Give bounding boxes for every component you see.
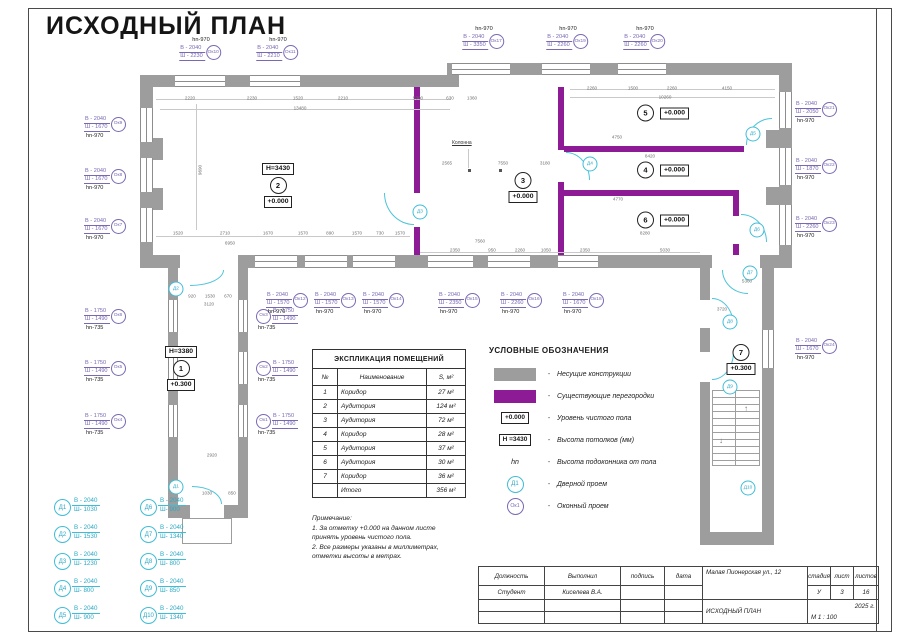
window-annotation: В - 2040Ш - 1870Ок22hn-970 xyxy=(795,158,837,182)
window-annotation: Ок2В - 1750Ш - 1490hn-735 xyxy=(256,360,298,384)
legend-title: УСЛОВНЫЕ ОБОЗНАЧЕНИЯ xyxy=(489,346,699,355)
window-dim-line: В - 2040 xyxy=(795,338,821,346)
window-dim-line: В - 2040 xyxy=(84,218,110,226)
sill-height-label: hn-735 xyxy=(84,430,126,437)
tb-empty xyxy=(665,612,703,623)
dim-label: 1570 xyxy=(298,231,308,236)
window-annotation: В - 2040Ш - 1670Ок24hn-970 xyxy=(795,338,837,362)
door-circle-symbol: Д1 xyxy=(507,476,524,493)
window-dims: В - 1750Ш - 1490 xyxy=(84,413,110,429)
window-opening xyxy=(238,405,248,437)
window-annotation: В - 2040Ш - 2350Ок15hn-970 xyxy=(438,292,480,316)
window-dim-line: В - 1750 xyxy=(84,308,110,316)
dim-label: 730 xyxy=(376,231,384,236)
sill-height-label: hn-735 xyxy=(256,377,298,384)
window-annotation-row: В - 1750Ш - 1490Ок6 xyxy=(84,308,126,324)
window-dim-line: Ш - 2260 xyxy=(500,300,526,308)
partition-segment xyxy=(733,196,739,216)
wall-segment xyxy=(666,63,792,75)
wall-segment xyxy=(238,255,255,268)
dim-label: 850 xyxy=(228,491,236,496)
door-id-badge: Д6 xyxy=(140,499,157,516)
window-dim-line: В - 2040 xyxy=(795,101,821,109)
window-annotation-row: В - 2040Ш - 3350Ок17 xyxy=(462,34,504,50)
dim-label: 670 xyxy=(224,294,232,299)
tb-empty xyxy=(545,600,621,612)
window-opening xyxy=(618,63,666,75)
schedule-cell: Итого xyxy=(338,484,427,498)
door-marker: Д9 xyxy=(723,380,738,395)
dim-label: 890 xyxy=(326,231,334,236)
schedule-table: ЭКСПЛИКАЦИЯ ПОМЕЩЕНИЙ№НаименованиеS, м²1… xyxy=(312,349,466,498)
window-annotation-row: В - 2040Ш - 2260Ок20 xyxy=(623,34,665,50)
window-dims: В - 2040Ш - 1670 xyxy=(84,218,110,234)
door-height: В - 2040 xyxy=(72,578,100,587)
dim-label: 1360 xyxy=(467,96,477,101)
partition-segment xyxy=(733,244,739,255)
room-elevation: +0.300 xyxy=(727,363,756,375)
legend-symbol xyxy=(489,368,541,381)
tb-date-value xyxy=(665,586,703,600)
sill-height-label: hn-735 xyxy=(84,325,126,332)
wall-opening xyxy=(190,505,224,518)
wall-segment xyxy=(760,255,792,268)
sill-height-label: hn-970 xyxy=(562,309,604,316)
dim-label: 2920 xyxy=(207,453,217,458)
schedule-cell: Аудитория xyxy=(338,414,427,428)
wall-segment xyxy=(510,63,542,75)
door-spec: Д7В - 2040Ш- 1340 xyxy=(140,524,186,551)
room-elevation: +0.000 xyxy=(509,191,538,203)
window-dims: В - 1750Ш - 1490 xyxy=(84,360,110,376)
dim-label: 8420 xyxy=(645,154,655,159)
legend-dash: - xyxy=(541,371,557,378)
dim-label: 2260 xyxy=(587,86,597,91)
schedule-cell: Коридор xyxy=(338,428,427,442)
door-spec: Д6В - 2040Ш- 900 xyxy=(140,497,186,524)
legend-item: Н =3430-Высота потолков (мм) xyxy=(489,429,699,451)
sill-height-label: hn-970 xyxy=(438,309,480,316)
wall-opening xyxy=(180,255,238,268)
door-height: В - 2040 xyxy=(72,524,100,533)
dim-label: 5300 xyxy=(413,96,423,101)
stairs-down-arrow: ↓ xyxy=(719,436,723,445)
door-spec-dims: В - 2040Ш- 1530 xyxy=(72,524,100,541)
dim-label: 630 xyxy=(446,96,454,101)
window-dim-line: Ш - 1490 xyxy=(272,316,298,324)
door-height: В - 2040 xyxy=(158,497,186,506)
legend-item: Ок1-Оконный проем xyxy=(489,495,699,517)
window-opening xyxy=(558,255,598,268)
column-label: Колонна xyxy=(452,140,472,146)
window-opening xyxy=(452,63,510,75)
wall-segment xyxy=(300,75,447,87)
notes: Примечание: 1. За отметку +0.000 на данн… xyxy=(312,514,487,562)
sill-height-label: hn-970 xyxy=(179,37,221,44)
window-id-badge: Ок24 xyxy=(822,339,837,354)
door-width: Ш- 900 xyxy=(72,614,100,622)
window-opening xyxy=(238,300,248,332)
door-spec: Д10В - 2040Ш- 1340 xyxy=(140,605,186,632)
window-dim-line: Ш - 1490 xyxy=(84,316,110,324)
dim-label: 2220 xyxy=(185,96,195,101)
wall-swatch xyxy=(494,368,536,381)
window-annotation: hn-970В - 2040Ш - 2260Ок19 xyxy=(546,26,588,50)
wall-segment xyxy=(766,187,779,205)
door-height: В - 2040 xyxy=(72,605,100,614)
window-dim-line: Ш - 1490 xyxy=(84,421,110,429)
tb-stage-value: У xyxy=(808,586,831,600)
window-id-badge: Ок16 xyxy=(527,293,542,308)
room-elevation: +0.000 xyxy=(660,214,689,226)
window-id-badge: Ок4 xyxy=(111,414,126,429)
window-dim-line: Ш - 1490 xyxy=(272,421,298,429)
sill-height-label: hn-970 xyxy=(795,118,837,125)
window-annotation-row: В - 2040Ш - 2260Ок16 xyxy=(500,292,542,308)
window-annotation: hn-970В - 2040Ш - 2230Ок10 xyxy=(179,37,221,61)
schedule-cell: 6 xyxy=(313,456,338,470)
wall-segment xyxy=(238,332,248,352)
wall-segment xyxy=(238,268,248,300)
schedule-cell: 2 xyxy=(313,400,338,414)
door-specs-column: Д1В - 2040Ш- 1030Д2В - 2040Ш- 1530Д3В - … xyxy=(54,497,100,632)
sill-height-label: hn-970 xyxy=(623,26,665,33)
door-marker: Д1 xyxy=(169,480,184,495)
window-dim-line: В - 2040 xyxy=(795,216,821,224)
door-spec-dims: В - 2040Ш- 1230 xyxy=(72,551,100,568)
dimension-line xyxy=(156,99,451,100)
window-dim-line: В - 1750 xyxy=(84,360,110,368)
tb-sign-value xyxy=(621,586,665,600)
room-label: 7+0.300 xyxy=(727,344,756,375)
window-id-badge: Ок12 xyxy=(293,293,308,308)
door-width: Ш- 800 xyxy=(72,587,100,595)
room-number: 1 xyxy=(173,360,190,377)
window-opening xyxy=(175,75,225,87)
dim-label: 1520 xyxy=(173,231,183,236)
legend-item: +0.000-Уровень чистого пола xyxy=(489,407,699,429)
window-dim-line: В - 2040 xyxy=(314,292,340,300)
window-opening xyxy=(250,75,300,87)
window-id-badge: Ок15 xyxy=(465,293,480,308)
window-opening xyxy=(779,148,792,185)
door-spec: Д5В - 2040Ш- 900 xyxy=(54,605,100,632)
tb-sheets-value: 16 xyxy=(854,586,878,600)
window-dims: В - 2040Ш - 2260 xyxy=(546,34,572,50)
schedule-cell: 36 м² xyxy=(427,470,466,484)
dim-label: 2260 xyxy=(515,248,525,253)
door-height: В - 2040 xyxy=(158,605,186,614)
wall-segment xyxy=(140,142,153,158)
partition-segment xyxy=(564,190,739,196)
dim-label: 2210 xyxy=(338,96,348,101)
door-marker: Д5 xyxy=(746,127,761,142)
schedule-header: Наименование xyxy=(338,369,427,386)
sill-height-label: hn-970 xyxy=(362,309,404,316)
window-id-badge: Ок18 xyxy=(589,293,604,308)
dim-label: 7560 xyxy=(475,239,485,244)
dim-label: 1030 xyxy=(202,491,212,496)
door-width: Ш- 900 xyxy=(158,506,186,514)
wall-segment xyxy=(590,63,618,75)
window-opening xyxy=(168,405,178,437)
elevation-box-symbol: Н =3430 xyxy=(499,434,532,446)
sill-height-symbol: hn xyxy=(511,459,519,466)
window-id-badge: Ок17 xyxy=(489,34,504,49)
window-opening xyxy=(779,205,792,245)
window-annotation: В - 2040Ш - 1570Ок13hn-970 xyxy=(314,292,356,316)
tb-sheet-value: 3 xyxy=(831,586,854,600)
legend-dash: - xyxy=(541,503,557,510)
window-dim-line: В - 2040 xyxy=(546,34,572,42)
staircase-divider xyxy=(735,390,736,466)
schedule-cell: 72 м² xyxy=(427,414,466,428)
dim-label: 13480 xyxy=(294,106,307,111)
door-arc xyxy=(384,193,414,225)
tb-empty xyxy=(545,612,621,623)
dim-label: 3180 xyxy=(540,161,550,166)
legend-dash: - xyxy=(541,393,557,400)
door-spec-dims: В - 2040Ш- 800 xyxy=(72,578,100,595)
sill-height-label: hn-970 xyxy=(795,355,837,362)
schedule-cell: 4 xyxy=(313,428,338,442)
schedule-cell: 27 м² xyxy=(427,386,466,400)
window-annotation: В - 2040Ш - 1670Ок8hn-970 xyxy=(84,168,126,192)
dim-label: 1570 xyxy=(395,231,405,236)
door-id-badge: Д5 xyxy=(54,607,71,624)
elevation-box-symbol: +0.000 xyxy=(501,412,529,424)
window-annotation-row: В - 2040Ш - 2210Ок11 xyxy=(256,45,298,61)
window-dim-line: В - 2040 xyxy=(438,292,464,300)
staircase xyxy=(712,390,760,466)
dim-label: 1530 xyxy=(205,294,215,299)
schedule-cell: 28 м² xyxy=(427,428,466,442)
dim-label: 1570 xyxy=(352,231,362,236)
window-opening xyxy=(238,352,248,384)
window-dim-line: В - 2040 xyxy=(84,168,110,176)
window-annotation-row: В - 2040Ш - 2050Ок21 xyxy=(795,101,837,117)
window-opening xyxy=(140,108,153,142)
dim-label: 7550 xyxy=(498,161,508,166)
door-id-badge: Д7 xyxy=(140,526,157,543)
window-dim-line: Ш - 1870 xyxy=(795,166,821,174)
door-id-badge: Д8 xyxy=(140,553,157,570)
window-opening xyxy=(255,255,297,268)
dim-label: 2565 xyxy=(442,161,452,166)
tb-scale: М 1 : 100 xyxy=(808,612,878,623)
door-id-badge: Д9 xyxy=(140,580,157,597)
partition-swatch xyxy=(494,390,536,403)
window-id-badge: Ок10 xyxy=(206,45,221,60)
legend-dash: - xyxy=(541,459,557,466)
tb-doc-title: ИСХОДНЫЙ ПЛАН xyxy=(703,600,808,623)
tb-sheets-header: листов xyxy=(854,567,878,586)
door-width: Ш- 1340 xyxy=(158,614,186,622)
sill-height-label: hn-970 xyxy=(795,175,837,182)
window-dim-line: Ш - 1490 xyxy=(272,368,298,376)
window-dim-line: Ш - 1670 xyxy=(84,124,110,132)
window-opening xyxy=(779,92,792,128)
window-id-badge: Ок9 xyxy=(111,117,126,132)
dim-label: 3120 xyxy=(204,302,214,307)
partition-segment xyxy=(414,227,420,255)
room-number: 6 xyxy=(637,212,654,229)
schedule-header: S, м² xyxy=(427,369,466,386)
wall-segment xyxy=(779,75,792,92)
sill-height-label: hn-970 xyxy=(546,26,588,33)
wall-segment xyxy=(762,368,774,532)
window-dims: В - 2040Ш - 2210 xyxy=(256,45,282,61)
door-width: Ш- 1530 xyxy=(72,533,100,541)
legend-label: Высота подоконника от пола xyxy=(557,459,656,466)
window-annotation-row: В - 2040Ш - 1570Ок13 xyxy=(314,292,356,308)
schedule-row: 6Аудитория30 м² xyxy=(313,456,466,470)
window-id-badge: Ок19 xyxy=(573,34,588,49)
window-dims: В - 1750Ш - 1490 xyxy=(272,360,298,376)
room-label: 4+0.000 xyxy=(637,162,689,179)
door-height: В - 2040 xyxy=(72,497,100,506)
wall-segment xyxy=(700,532,774,545)
legend: УСЛОВНЫЕ ОБОЗНАЧЕНИЯ -Несущие конструкци… xyxy=(489,346,699,517)
window-id-badge: Ок8 xyxy=(111,169,126,184)
room-number: 7 xyxy=(732,344,749,361)
window-dims: В - 2040Ш - 1570 xyxy=(266,292,292,308)
door-height: В - 2040 xyxy=(158,524,186,533)
door-id-badge: Д4 xyxy=(54,580,71,597)
door-spec: Д2В - 2040Ш- 1530 xyxy=(54,524,100,551)
window-dims: В - 2040Ш - 2350 xyxy=(438,292,464,308)
wall-segment xyxy=(700,382,710,532)
window-dim-line: Ш - 1670 xyxy=(84,176,110,184)
window-dim-line: В - 2040 xyxy=(362,292,388,300)
window-dims: В - 2040Ш - 1570 xyxy=(314,292,340,308)
dimension-line xyxy=(156,236,410,237)
window-opening xyxy=(168,300,178,332)
tb-empty xyxy=(665,600,703,612)
note-line: принять уровень чистого пола. xyxy=(312,533,487,543)
legend-symbol: Д1 xyxy=(489,476,541,493)
legend-label: Несущие конструкции xyxy=(557,371,631,378)
title-block: Должность Выполнил подпись дата Студент … xyxy=(478,566,879,624)
legend-item: hn-Высота подоконника от пола xyxy=(489,451,699,473)
dim-label: 2710 xyxy=(220,231,230,236)
door-marker: Д3 xyxy=(413,205,428,220)
door-height: В - 2040 xyxy=(158,578,186,587)
window-annotation-row: Ок2В - 1750Ш - 1490 xyxy=(256,360,298,376)
window-annotation: В - 1750Ш - 1490Ок6hn-735 xyxy=(84,308,126,332)
legend-label: Оконный проем xyxy=(557,503,609,510)
window-dims: В - 2040Ш - 1570 xyxy=(362,292,388,308)
room-label: 6+0.000 xyxy=(637,212,689,229)
note-line: 2. Все размеры указаны в миллиметрах, xyxy=(312,543,487,553)
wall-segment xyxy=(762,268,774,330)
door-marker: Д2 xyxy=(169,282,184,297)
entrance-porch xyxy=(182,518,232,544)
sill-height-label: hn-735 xyxy=(84,377,126,384)
schedule-cell: 30 м² xyxy=(427,456,466,470)
window-dim-line: В - 2040 xyxy=(179,45,205,53)
window-dim-line: Ш - 2230 xyxy=(179,53,205,61)
schedule-title: ЭКСПЛИКАЦИЯ ПОМЕЩЕНИЙ xyxy=(313,350,466,369)
note-line: отметки высоты в метрах. xyxy=(312,552,487,562)
window-id-badge: Ок5 xyxy=(111,361,126,376)
dim-label: 1500 xyxy=(628,86,638,91)
dim-label: 2350 xyxy=(450,248,460,253)
window-opening xyxy=(542,63,590,75)
wall-segment xyxy=(140,255,180,268)
room-label: Н=34302+0.000 xyxy=(262,163,294,208)
legend-dash: - xyxy=(541,415,557,422)
schedule-row: 2Аудитория124 м² xyxy=(313,400,466,414)
schedule-cell: 5 xyxy=(313,442,338,456)
legend-symbol: +0.000 xyxy=(489,412,541,424)
dim-label: 6950 xyxy=(225,241,235,246)
schedule-row: 5Аудитория37 м² xyxy=(313,442,466,456)
window-dim-line: В - 1750 xyxy=(272,413,298,421)
wall-segment xyxy=(224,505,248,518)
window-annotation: В - 2040Ш - 2260Ок23hn-970 xyxy=(795,216,837,240)
door-spec: Д4В - 2040Ш- 800 xyxy=(54,578,100,605)
dim-label: 1670 xyxy=(263,231,273,236)
door-spec: Д9В - 2040Ш- 850 xyxy=(140,578,186,605)
window-annotation-row: В - 2040Ш - 1570Ок14 xyxy=(362,292,404,308)
tb-empty xyxy=(479,600,545,612)
drawing-sheet: ИСХОДНЫЙ ПЛАН ↓↑Колоннаhn-970В - 2040Ш -… xyxy=(0,0,900,637)
dim-label: 10260 xyxy=(659,95,672,100)
window-annotation-row: В - 2040Ш - 2230Ок10 xyxy=(179,45,221,61)
legend-item: -Несущие конструкции xyxy=(489,363,699,385)
door-height: В - 2040 xyxy=(158,551,186,560)
tb-author-value: Киселева В.А. xyxy=(545,586,621,600)
legend-label: Высота потолков (мм) xyxy=(557,437,634,444)
window-dim-line: В - 2040 xyxy=(795,158,821,166)
door-marker: Д8 xyxy=(723,315,738,330)
room-ceiling-height: Н=3430 xyxy=(262,163,294,175)
window-annotation-row: В - 2040Ш - 1670Ок8 xyxy=(84,168,126,184)
door-spec-dims: В - 2040Ш- 900 xyxy=(158,497,186,514)
sill-height-label: hn-970 xyxy=(462,26,504,33)
window-dim-line: В - 2040 xyxy=(84,116,110,124)
dim-label: 5030 xyxy=(660,248,670,253)
window-dims: В - 2040Ш - 2260 xyxy=(623,34,649,50)
tb-stage-header: стадия xyxy=(808,567,831,586)
tb-date-header: дата xyxy=(665,567,703,586)
window-opening xyxy=(353,255,395,268)
window-id-badge: Ок22 xyxy=(822,159,837,174)
wall-segment xyxy=(779,185,792,205)
window-annotation-row: В - 1750Ш - 1490Ок5 xyxy=(84,360,126,376)
window-annotation-row: В - 2040Ш - 1870Ок22 xyxy=(795,158,837,174)
dim-label: 4750 xyxy=(612,135,622,140)
window-dim-line: Ш - 2350 xyxy=(438,300,464,308)
wall-segment xyxy=(779,128,792,148)
window-annotation: Ок1В - 1750Ш - 1490hn-735 xyxy=(256,413,298,437)
door-width: Ш- 1230 xyxy=(72,560,100,568)
dim-label: 1520 xyxy=(293,96,303,101)
room-label: 5+0.000 xyxy=(637,105,689,122)
window-opening xyxy=(140,158,153,192)
stairs-up-arrow: ↑ xyxy=(744,404,748,413)
room-schedule: ЭКСПЛИКАЦИЯ ПОМЕЩЕНИЙ№НаименованиеS, м²1… xyxy=(312,349,466,498)
window-annotation-row: В - 2040Ш - 1670Ок18 xyxy=(562,292,604,308)
window-id-badge: Ок11 xyxy=(283,45,298,60)
window-dims: В - 2040Ш - 2230 xyxy=(179,45,205,61)
window-annotation: hn-970В - 2040Ш - 2210Ок11 xyxy=(256,37,298,61)
window-dim-line: В - 2040 xyxy=(266,292,292,300)
legend-label: Дверной проем xyxy=(557,481,607,488)
door-spec: Д1В - 2040Ш- 1030 xyxy=(54,497,100,524)
wall-segment xyxy=(140,75,175,87)
